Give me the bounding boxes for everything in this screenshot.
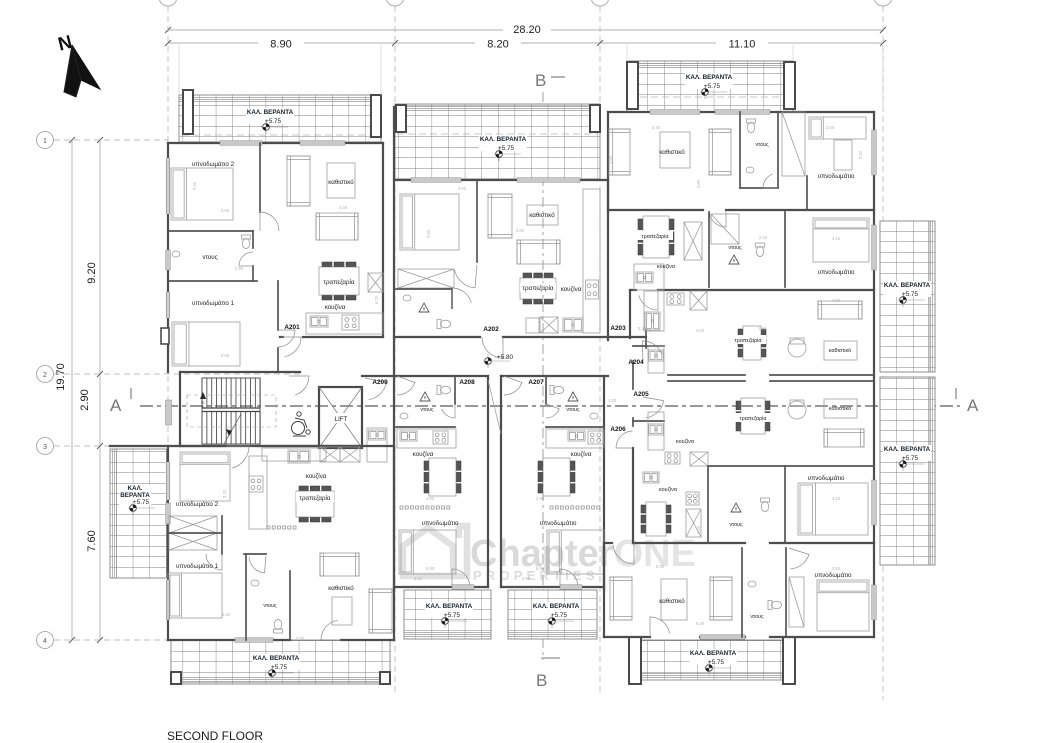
svg-text:8.20: 8.20 bbox=[487, 39, 508, 51]
svg-text:ΚΑΛ.: ΚΑΛ. bbox=[127, 485, 142, 492]
svg-text:ΚΑΛ. ΒΕΡΑΝΤΑ: ΚΑΛ. ΒΕΡΑΝΤΑ bbox=[253, 655, 300, 662]
svg-text:A: A bbox=[967, 396, 979, 415]
svg-text:υπνοδωμάτιο: υπνοδωμάτιο bbox=[422, 520, 459, 527]
svg-text:4.10: 4.10 bbox=[832, 236, 841, 241]
svg-text:καθιστικό: καθιστικό bbox=[659, 149, 685, 156]
svg-text:2.95: 2.95 bbox=[235, 266, 244, 271]
svg-text:κουζίνα: κουζίνα bbox=[659, 487, 677, 493]
svg-text:A205: A205 bbox=[633, 391, 649, 398]
svg-text:3.50: 3.50 bbox=[826, 125, 835, 130]
svg-text:υπνοδωμάτιο 1: υπνοδωμάτιο 1 bbox=[176, 563, 219, 570]
svg-text:1.30: 1.30 bbox=[608, 398, 617, 403]
svg-text:υπνοδωμάτιο 2: υπνοδωμάτιο 2 bbox=[192, 161, 235, 168]
svg-text:A207: A207 bbox=[528, 379, 544, 386]
svg-text:τραπεζαρία: τραπεζαρία bbox=[300, 495, 331, 502]
svg-text:κουζίνα: κουζίνα bbox=[561, 286, 582, 293]
svg-text:2.90: 2.90 bbox=[79, 389, 91, 410]
svg-text:κουζίνα: κουζίνα bbox=[413, 451, 434, 458]
svg-text:καθιστικό: καθιστικό bbox=[328, 585, 354, 592]
svg-text:κουζίνα: κουζίνα bbox=[306, 473, 327, 480]
svg-text:6.70: 6.70 bbox=[374, 295, 379, 304]
svg-text:3.80: 3.80 bbox=[608, 155, 613, 164]
svg-text:3: 3 bbox=[43, 444, 47, 451]
svg-text:+5.80: +5.80 bbox=[497, 354, 513, 361]
svg-text:ΚΑΛ. ΒΕΡΑΝΤΑ: ΚΑΛ. ΒΕΡΑΝΤΑ bbox=[480, 136, 527, 143]
svg-text:4.80: 4.80 bbox=[516, 228, 525, 233]
svg-text:B: B bbox=[536, 671, 547, 690]
svg-text:A209: A209 bbox=[372, 379, 388, 386]
svg-text:ντους: ντους bbox=[728, 245, 742, 251]
svg-text:ντους: ντους bbox=[729, 522, 743, 528]
svg-text:1.10: 1.10 bbox=[758, 326, 767, 331]
svg-text:υπνοδωμάτιο: υπνοδωμάτιο bbox=[818, 269, 855, 276]
svg-text:A206: A206 bbox=[610, 426, 626, 433]
svg-text:5.95: 5.95 bbox=[296, 636, 305, 641]
svg-text:3.95: 3.95 bbox=[221, 353, 230, 358]
svg-text:ντους: ντους bbox=[755, 142, 769, 148]
svg-text:5.90: 5.90 bbox=[426, 566, 435, 571]
svg-text:2.90: 2.90 bbox=[536, 496, 545, 501]
svg-text:ΚΑΛ. ΒΕΡΑΝΤΑ: ΚΑΛ. ΒΕΡΑΝΤΑ bbox=[690, 650, 737, 657]
svg-text:SECOND FLOOR: SECOND FLOOR bbox=[167, 729, 263, 743]
svg-text:ΚΑΛ. ΒΕΡΑΝΤΑ: ΚΑΛ. ΒΕΡΑΝΤΑ bbox=[686, 74, 733, 81]
svg-text:ΚΑΛ. ΒΕΡΑΝΤΑ: ΚΑΛ. ΒΕΡΑΝΤΑ bbox=[884, 446, 931, 453]
svg-text:3.50: 3.50 bbox=[832, 566, 841, 571]
svg-text:A204: A204 bbox=[628, 359, 644, 366]
svg-text:4.00: 4.00 bbox=[832, 298, 841, 303]
svg-text:5.30: 5.30 bbox=[656, 564, 665, 569]
svg-text:3.30: 3.30 bbox=[638, 326, 647, 331]
svg-text:LIFT: LIFT bbox=[335, 416, 348, 423]
svg-text:ντους: ντους bbox=[750, 614, 764, 620]
svg-text:3.30: 3.30 bbox=[192, 181, 197, 190]
svg-text:ΚΑΛ. ΒΕΡΑΝΤΑ: ΚΑΛ. ΒΕΡΑΝΤΑ bbox=[533, 603, 580, 610]
svg-text:υπνοδωμάτιο: υπνοδωμάτιο bbox=[815, 572, 852, 579]
svg-text:3.80: 3.80 bbox=[696, 179, 701, 188]
svg-text:ΚΑΛ. ΒΕΡΑΝΤΑ: ΚΑΛ. ΒΕΡΑΝΤΑ bbox=[884, 282, 931, 289]
svg-text:2.50: 2.50 bbox=[759, 235, 768, 240]
svg-text:τραπεζαρία: τραπεζαρία bbox=[735, 338, 762, 344]
svg-text:ΚΑΛ. ΒΕΡΑΝΤΑ: ΚΑΛ. ΒΕΡΑΝΤΑ bbox=[247, 109, 294, 116]
svg-text:A202: A202 bbox=[483, 326, 499, 333]
svg-text:υπνοδωμάτιο: υπνοδωμάτιο bbox=[808, 475, 845, 482]
svg-text:ντους: ντους bbox=[420, 407, 434, 413]
svg-text:28.20: 28.20 bbox=[513, 24, 541, 36]
svg-text:τραπεζαρία: τραπεζαρία bbox=[642, 234, 669, 240]
svg-text:υπνοδωμάτιο: υπνοδωμάτιο bbox=[818, 173, 855, 180]
svg-text:19.70: 19.70 bbox=[55, 363, 67, 391]
svg-text:3.20: 3.20 bbox=[222, 612, 231, 617]
svg-text:1: 1 bbox=[43, 138, 47, 145]
svg-text:τραπεζαρία: τραπεζαρία bbox=[740, 416, 767, 422]
svg-text:A208: A208 bbox=[459, 379, 475, 386]
svg-text:ντους: ντους bbox=[263, 603, 277, 609]
svg-text:2.90: 2.90 bbox=[426, 496, 435, 501]
svg-text:καθιστικό: καθιστικό bbox=[328, 179, 354, 186]
svg-text:4: 4 bbox=[43, 638, 47, 645]
svg-text:ντους: ντους bbox=[202, 254, 217, 261]
svg-text:υπνοδωμάτιο 2: υπνοδωμάτιο 2 bbox=[176, 501, 219, 508]
svg-text:τραπεζαρία: τραπεζαρία bbox=[324, 279, 355, 286]
svg-text:κουζίνα: κουζίνα bbox=[657, 264, 675, 270]
svg-text:3.60: 3.60 bbox=[522, 576, 531, 581]
svg-text:ΒΕΡΑΝΤΑ: ΒΕΡΑΝΤΑ bbox=[120, 492, 150, 499]
svg-text:B: B bbox=[535, 71, 546, 90]
svg-text:3.40: 3.40 bbox=[696, 525, 701, 534]
svg-text:υπνοδωμάτιο 1: υπνοδωμάτιο 1 bbox=[192, 300, 235, 307]
svg-text:τραπεζαρία: τραπεζαρία bbox=[523, 285, 554, 292]
svg-text:A201: A201 bbox=[284, 324, 300, 331]
svg-text:9.20: 9.20 bbox=[86, 262, 98, 283]
svg-text:3.90: 3.90 bbox=[426, 229, 431, 238]
svg-text:4.55: 4.55 bbox=[339, 205, 348, 210]
svg-text:8.90: 8.90 bbox=[270, 39, 291, 51]
svg-text:3.90: 3.90 bbox=[458, 186, 467, 191]
svg-text:5.30: 5.30 bbox=[696, 621, 705, 626]
svg-text:5.40: 5.40 bbox=[652, 125, 661, 130]
svg-text:A203: A203 bbox=[610, 325, 626, 332]
svg-text:5.90: 5.90 bbox=[536, 566, 545, 571]
svg-text:A: A bbox=[110, 396, 122, 415]
svg-text:υπνοδωμάτιο: υπνοδωμάτιο bbox=[540, 520, 577, 527]
svg-text:κουζίνα: κουζίνα bbox=[571, 451, 592, 458]
svg-text:4.00: 4.00 bbox=[696, 328, 705, 333]
svg-text:καθιστικό: καθιστικό bbox=[529, 212, 555, 219]
svg-text:7.60: 7.60 bbox=[86, 530, 98, 551]
svg-text:4.10: 4.10 bbox=[832, 496, 841, 501]
svg-text:ντους: ντους bbox=[566, 407, 580, 413]
svg-text:κουζίνα: κουζίνα bbox=[676, 439, 694, 445]
svg-text:3.95: 3.95 bbox=[221, 208, 230, 213]
svg-text:καθιστικό: καθιστικό bbox=[829, 347, 851, 354]
svg-text:2: 2 bbox=[43, 372, 47, 379]
svg-text:11.10: 11.10 bbox=[729, 39, 756, 51]
svg-text:3.20: 3.20 bbox=[222, 489, 227, 498]
svg-text:3.60: 3.60 bbox=[414, 576, 423, 581]
svg-text:κουζίνα: κουζίνα bbox=[325, 304, 346, 311]
svg-text:+5.75: +5.75 bbox=[133, 499, 149, 506]
svg-text:καθιστικό: καθιστικό bbox=[829, 405, 851, 412]
svg-text:καθιστικό: καθιστικό bbox=[659, 598, 685, 605]
svg-text:3.50: 3.50 bbox=[858, 150, 863, 159]
svg-text:ΚΑΛ. ΒΕΡΑΝΤΑ: ΚΑΛ. ΒΕΡΑΝΤΑ bbox=[426, 603, 473, 610]
